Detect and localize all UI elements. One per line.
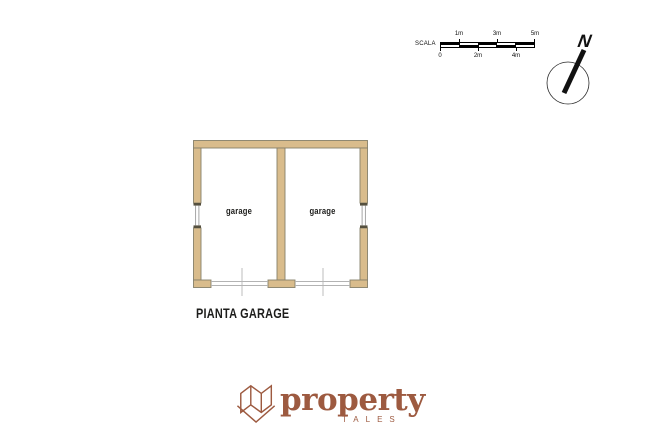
scale-bar-label: SCALA xyxy=(415,41,436,47)
scale-tick-label: 3m xyxy=(493,31,501,37)
scale-tick xyxy=(497,39,498,42)
north-arrow-icon xyxy=(564,50,584,93)
room-label-garage-left: garage xyxy=(207,206,272,216)
logo-subtitle-text: TALES xyxy=(342,415,402,424)
folded-map-icon xyxy=(236,378,278,426)
scale-tick xyxy=(440,48,441,51)
wall-right-lower xyxy=(360,228,368,280)
floor-plan: garage garage xyxy=(193,140,368,300)
room-label-garage-right: garage xyxy=(291,206,355,216)
plan-caption: PIANTA GARAGE xyxy=(196,305,289,321)
wall-left-upper xyxy=(194,148,202,203)
scale-tick xyxy=(534,39,535,42)
scale-tick xyxy=(478,48,479,51)
wall-bottom-center xyxy=(268,280,295,288)
wall-right-upper xyxy=(360,148,368,203)
scale-tick-label: 5m xyxy=(531,31,539,37)
scale-tick-label: 0 xyxy=(438,53,441,59)
wall-bottom-right-stub xyxy=(350,280,368,288)
scale-tick-label: 4m xyxy=(512,53,520,59)
scale-bar-row-bottom xyxy=(441,45,534,47)
scale-tick-label: 2m xyxy=(474,53,482,59)
compass xyxy=(543,30,601,112)
wall-middle xyxy=(277,148,285,280)
garage-door-opening-right xyxy=(295,282,350,286)
garage-door-opening-left xyxy=(211,282,268,286)
window-right-icon xyxy=(360,203,368,228)
wall-left-lower xyxy=(194,228,202,280)
floor-plan-page: SCALA 1m 3m 5m 0 2m xyxy=(0,0,650,433)
wall-top xyxy=(194,141,368,149)
scale-tick xyxy=(516,48,517,51)
window-left-icon xyxy=(194,203,202,228)
scale-tick-label: 1m xyxy=(455,31,463,37)
scale-bar: SCALA 1m 3m 5m 0 2m xyxy=(440,42,535,48)
floor-plan-drawing xyxy=(193,140,368,300)
scale-bar-segments xyxy=(440,42,535,48)
wall-bottom-left-stub xyxy=(194,280,212,288)
brand-logo: property TALES xyxy=(236,376,426,430)
logo-brand-text: property xyxy=(280,385,425,416)
scale-tick xyxy=(459,39,460,42)
